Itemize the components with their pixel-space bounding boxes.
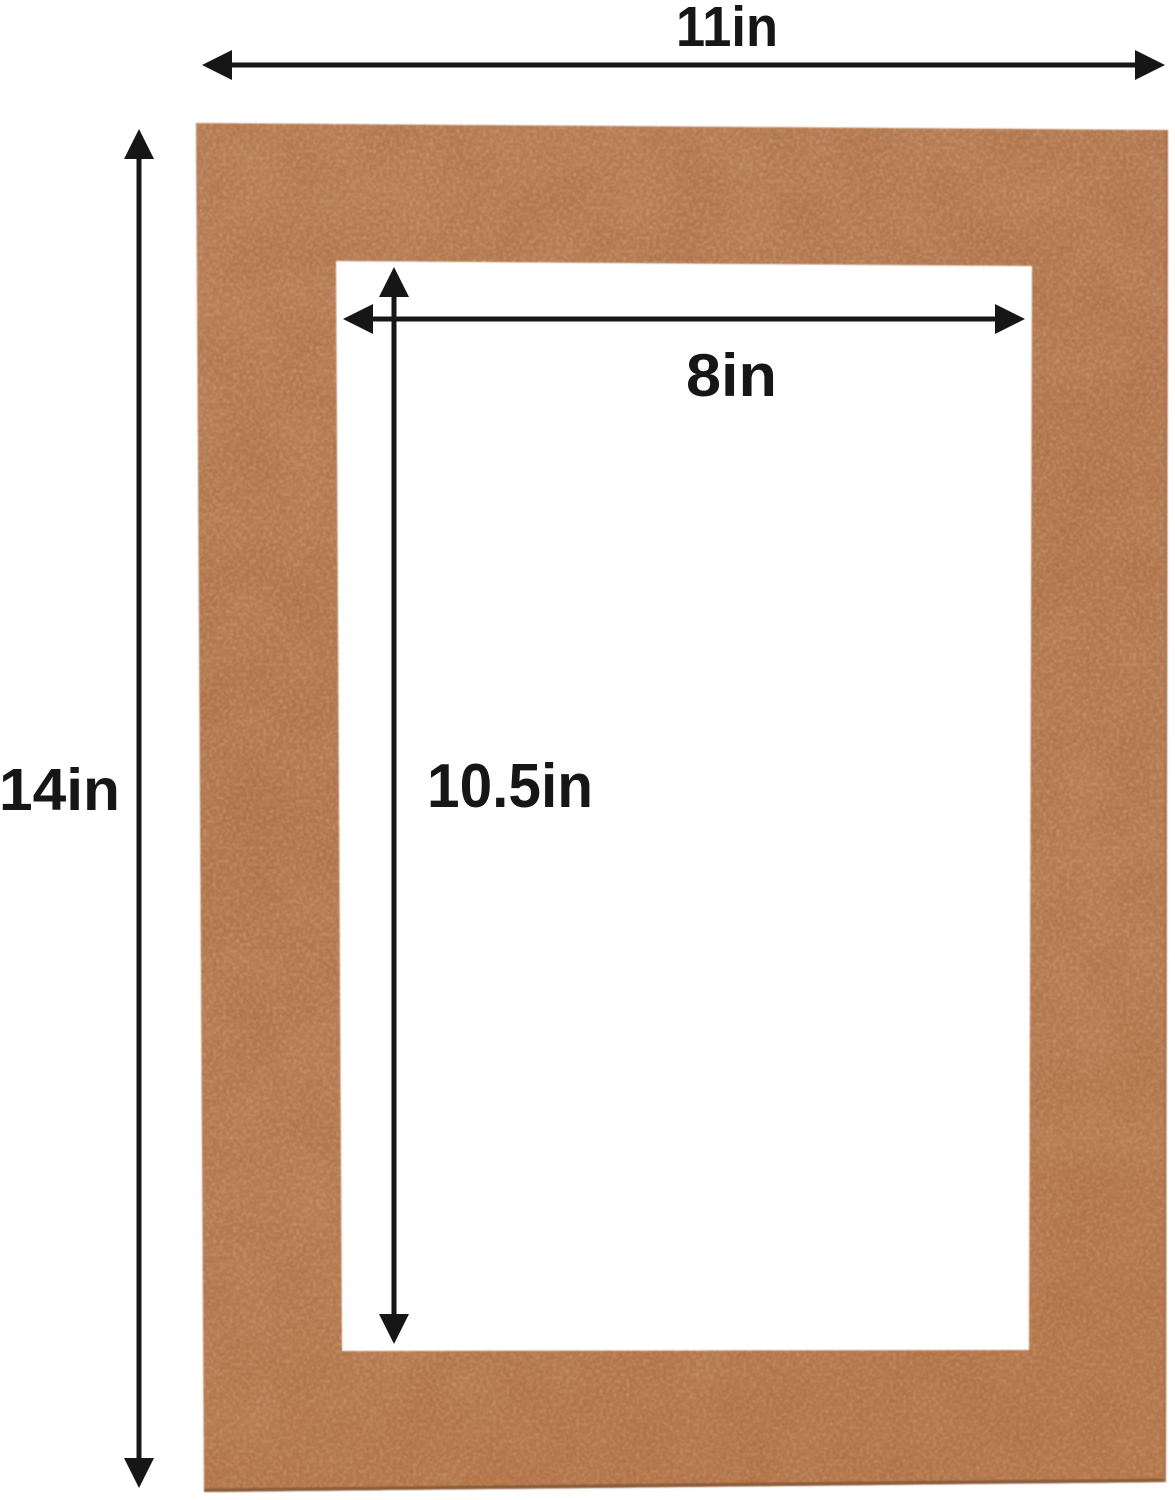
svg-text:11in: 11in: [676, 0, 778, 59]
svg-text:10.5in: 10.5in: [427, 752, 593, 821]
svg-text:14in: 14in: [0, 757, 120, 823]
svg-text:8in: 8in: [686, 342, 777, 409]
